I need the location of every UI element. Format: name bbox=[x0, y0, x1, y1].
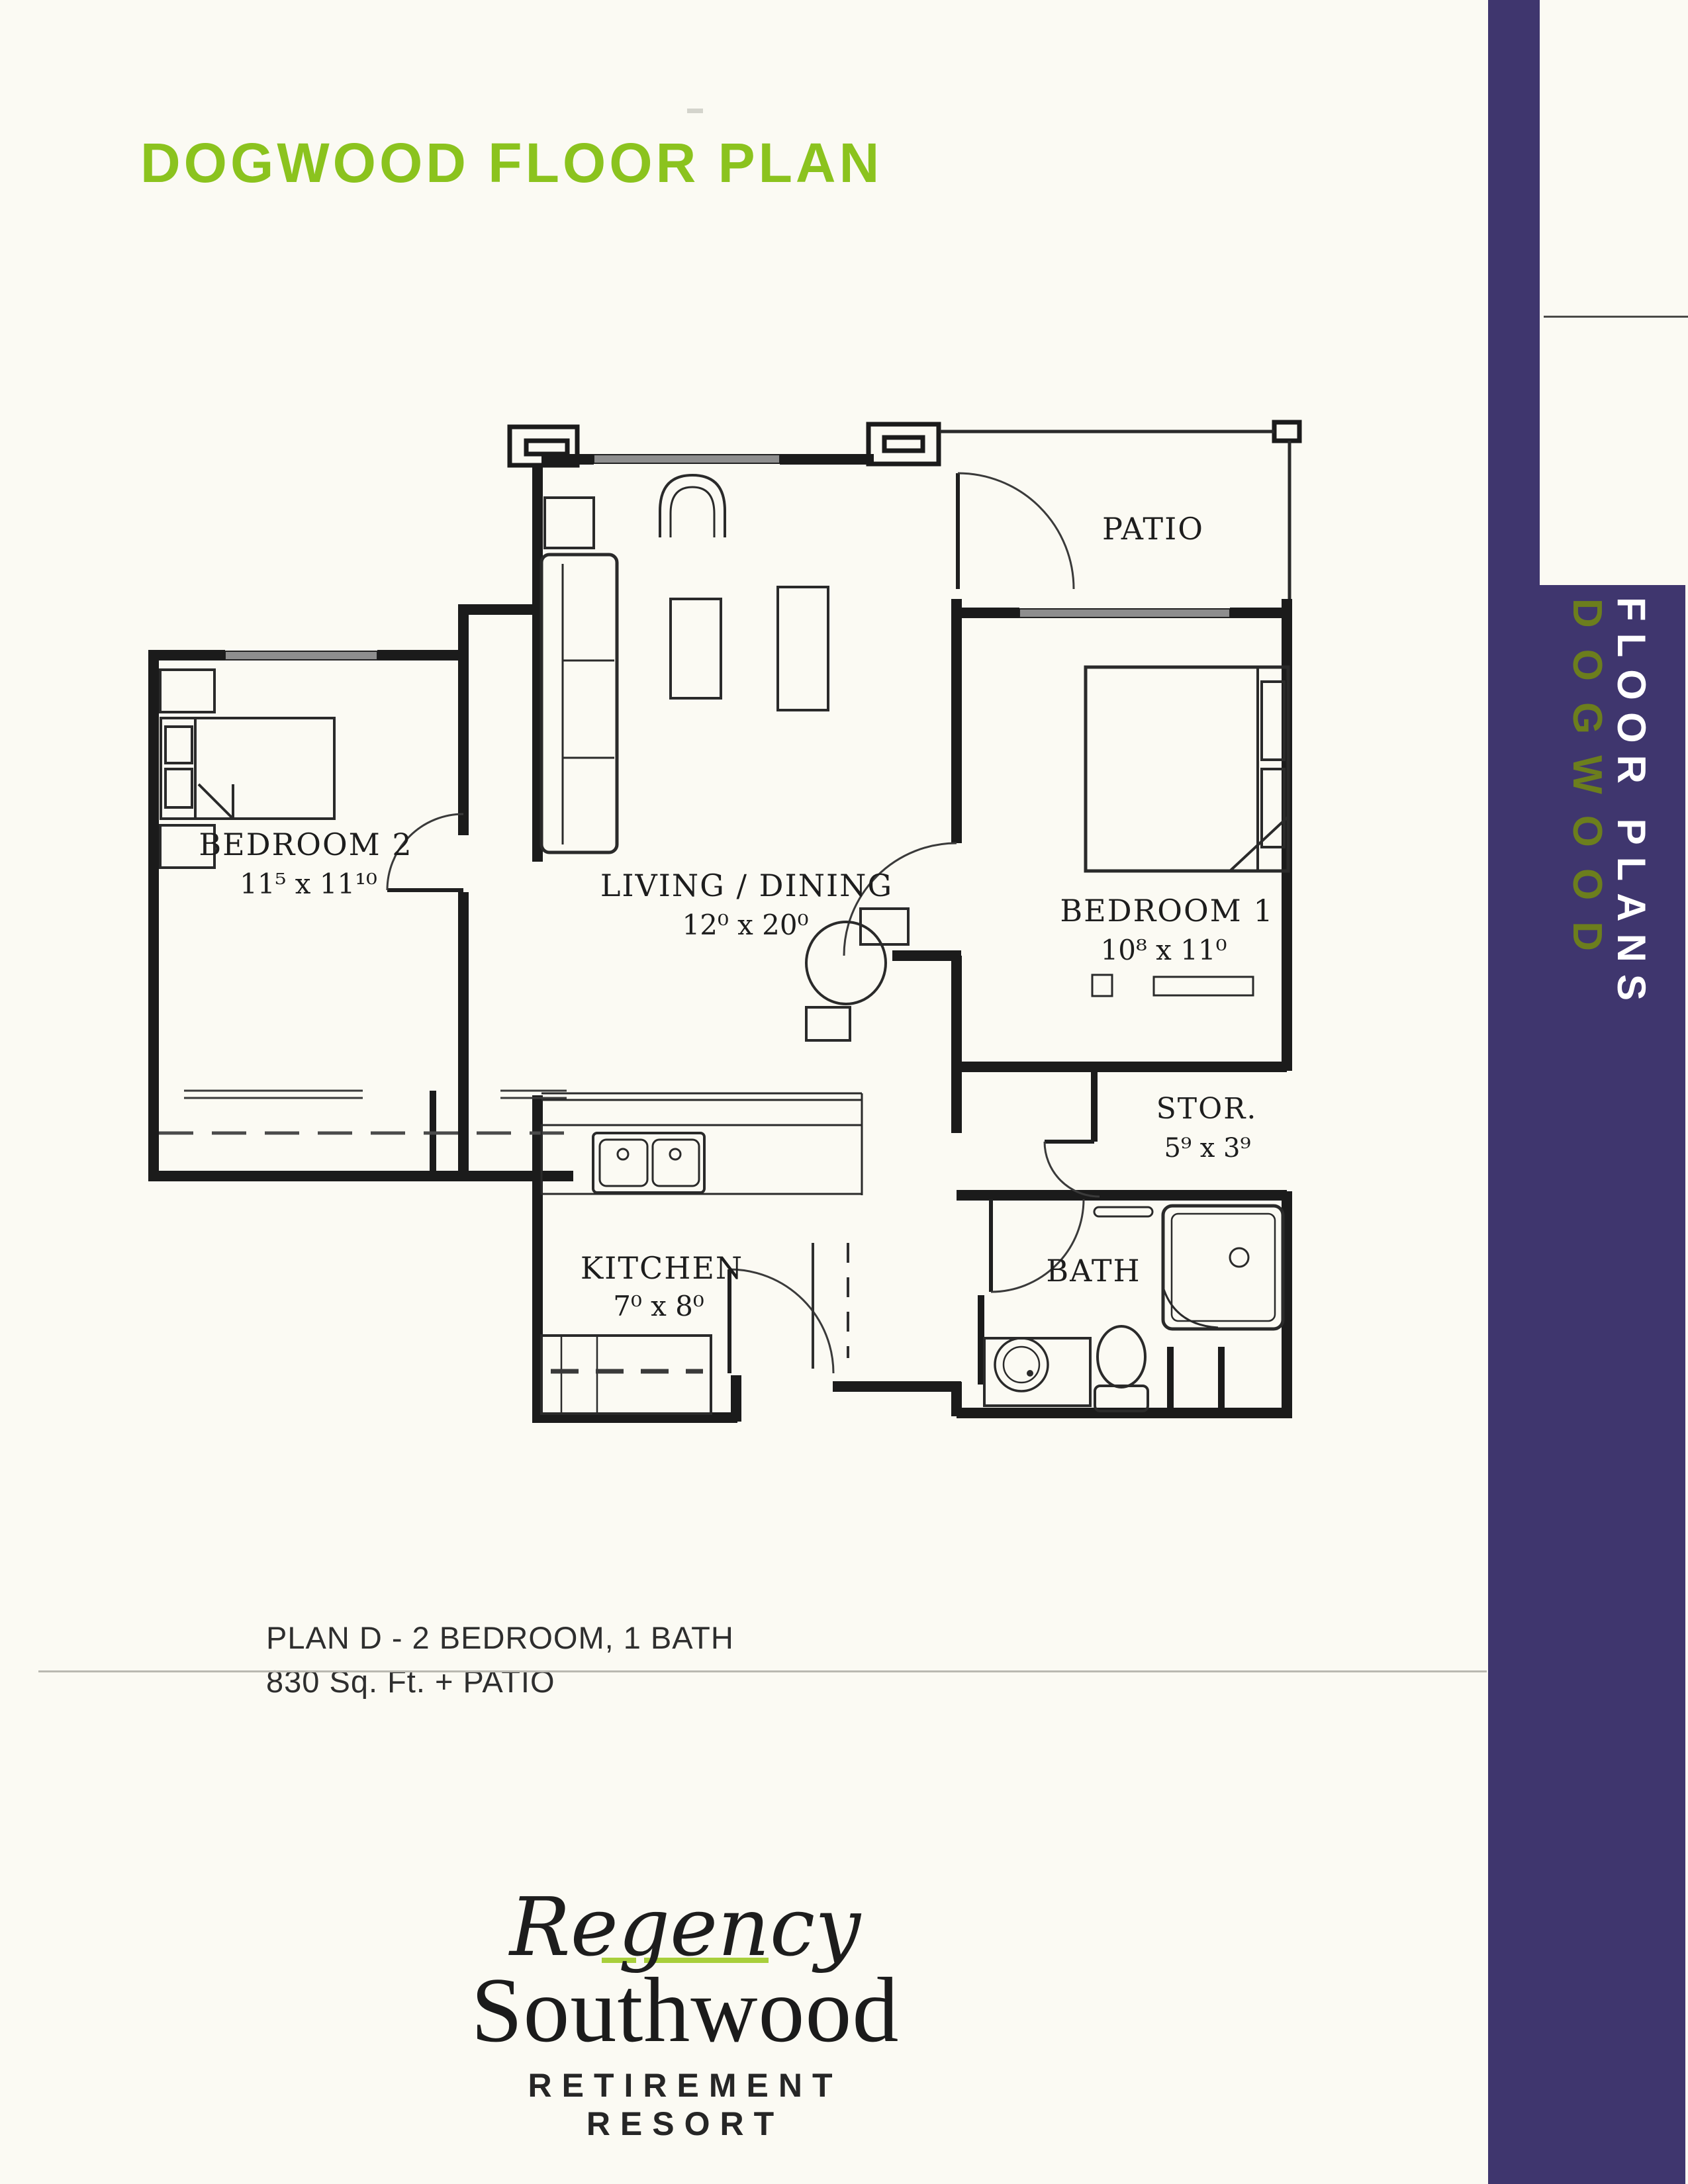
arch-niche-inner bbox=[671, 487, 714, 537]
room-label-kitchen: KITCHEN bbox=[581, 1250, 743, 1286]
room-label-storage: STOR. bbox=[1156, 1092, 1258, 1126]
sofa bbox=[541, 555, 617, 852]
patio-wall-cap bbox=[1274, 422, 1299, 441]
towel-bar bbox=[1094, 1207, 1152, 1216]
bed2-pillow bbox=[165, 727, 192, 763]
kitchen-counter-bottom bbox=[541, 1336, 711, 1414]
entry-door-arc bbox=[729, 1269, 833, 1373]
room-dims-bedroom2: 11⁵ x 11¹⁰ bbox=[240, 868, 377, 900]
plan-summary: PLAN D - 2 BEDROOM, 1 BATH 830 Sq. Ft. +… bbox=[266, 1616, 734, 1704]
walls-medium bbox=[433, 1064, 1221, 1408]
logo-script-regency: Regency bbox=[420, 1888, 950, 1967]
living-window bbox=[594, 455, 780, 463]
bed2-pillow bbox=[165, 769, 192, 807]
floor-plan-drawing: PATIO BEDROOM 1 10⁸ x 11⁰ BEDROOM 2 11⁵ … bbox=[0, 0, 1688, 2184]
brand-logo: Regency Southwood RETIREMENT RESORT bbox=[420, 1888, 950, 2143]
sidebar-tab-dogwood: DOGWOOD bbox=[1564, 598, 1611, 972]
room-label-patio: PATIO bbox=[1102, 511, 1204, 547]
sink-basin bbox=[653, 1140, 699, 1186]
plan-summary-line1: PLAN D - 2 BEDROOM, 1 BATH bbox=[266, 1616, 734, 1660]
document-page: DOGWOOD FLOOR PLAN bbox=[0, 0, 1688, 2184]
storage-door-arc bbox=[1045, 1142, 1100, 1197]
bed2-fold bbox=[199, 784, 233, 819]
sidebar-tab-floor-plans: FLOOR PLANS bbox=[1609, 597, 1654, 1013]
room-dims-bedroom1: 10⁸ x 11⁰ bbox=[1101, 934, 1227, 966]
scan-crease-line bbox=[38, 1670, 1487, 1672]
vanity-sink-inner bbox=[1004, 1347, 1039, 1383]
armchair bbox=[545, 498, 594, 548]
pillar-right bbox=[868, 424, 939, 464]
sink-drain bbox=[618, 1149, 628, 1160]
bed1-pillow bbox=[1262, 682, 1284, 760]
sink-basin bbox=[600, 1140, 647, 1186]
kitchen-sink-unit bbox=[593, 1133, 704, 1193]
room-label-bedroom2: BEDROOM 2 bbox=[199, 827, 412, 862]
logo-name-southwood: Southwood bbox=[420, 1964, 950, 2057]
toilet-bowl bbox=[1098, 1326, 1145, 1387]
room-dims-storage: 5⁹ x 3⁹ bbox=[1164, 1133, 1251, 1163]
nightstand bbox=[160, 670, 214, 712]
room-label-bath: BATH bbox=[1046, 1253, 1141, 1289]
room-label-bedroom1: BEDROOM 1 bbox=[1060, 893, 1274, 929]
bedroom1-patio-window bbox=[1019, 609, 1230, 617]
patio-door-arc bbox=[958, 473, 1074, 589]
bedroom2-closet bbox=[159, 1091, 567, 1133]
dining-chair bbox=[806, 1007, 850, 1040]
room-label-living: LIVING / DINING bbox=[600, 868, 893, 903]
kitchen-counter-top bbox=[541, 1125, 862, 1194]
kitchen-floor-line bbox=[541, 1093, 862, 1195]
shower-inner bbox=[1172, 1214, 1275, 1321]
sofa-cushions bbox=[563, 564, 614, 844]
sidebar-notch-line bbox=[1544, 316, 1688, 318]
pillar-right-inner bbox=[884, 437, 923, 451]
pillar-left-inner bbox=[526, 441, 567, 454]
toilet-tank bbox=[1095, 1386, 1148, 1411]
vanity-drain bbox=[1027, 1370, 1033, 1377]
counter-divider bbox=[561, 1336, 597, 1414]
small-cabinet bbox=[1092, 975, 1112, 996]
logo-tagline: RETIREMENT RESORT bbox=[420, 2066, 950, 2143]
plan-summary-line2: 830 Sq. Ft. + PATIO bbox=[266, 1660, 734, 1704]
sink-drain bbox=[670, 1149, 680, 1160]
room-dims-living: 12⁰ x 20⁰ bbox=[682, 909, 809, 941]
bedroom2-window bbox=[225, 651, 377, 660]
dining-chair bbox=[861, 909, 908, 944]
shower-drain bbox=[1230, 1248, 1248, 1267]
bath-fixtures bbox=[984, 1206, 1283, 1411]
window-bands bbox=[225, 455, 1230, 660]
coffee-table bbox=[671, 599, 721, 698]
shower bbox=[1163, 1206, 1283, 1329]
loveseat bbox=[778, 587, 828, 710]
dresser bbox=[1154, 977, 1253, 995]
living-furniture bbox=[541, 475, 908, 1040]
bed1-pillow bbox=[1262, 769, 1284, 847]
room-dims-kitchen: 7⁰ x 8⁰ bbox=[613, 1290, 704, 1322]
